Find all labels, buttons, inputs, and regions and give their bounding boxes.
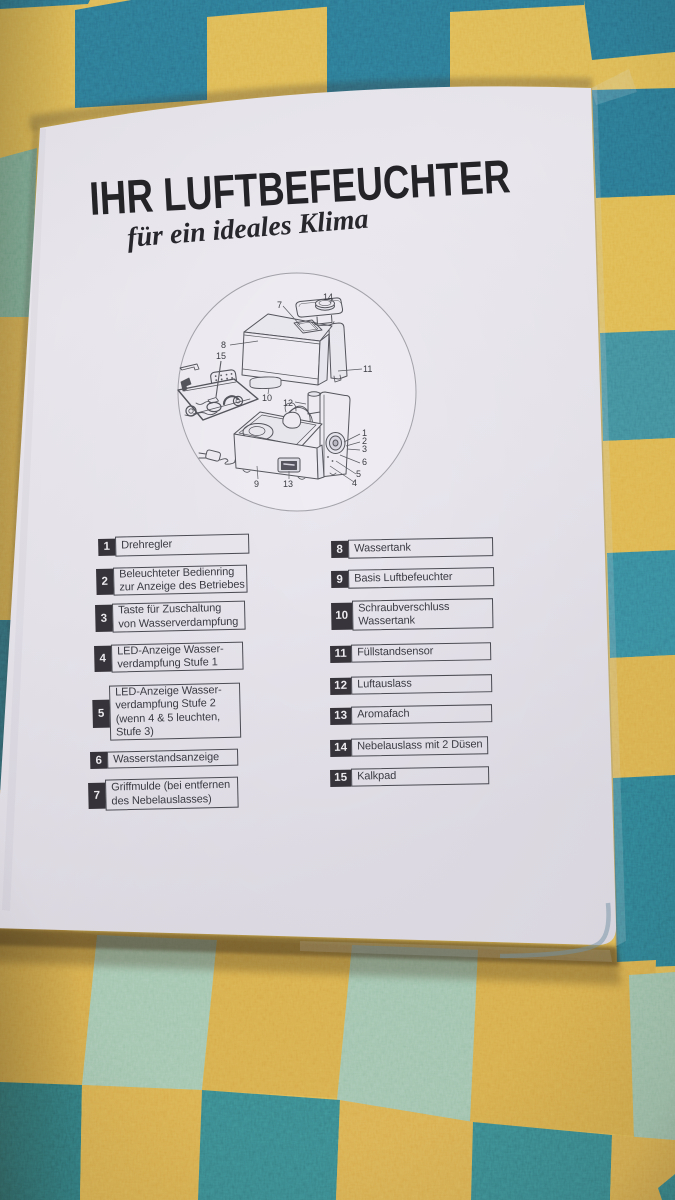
svg-text:4: 4 xyxy=(352,478,357,488)
svg-text:10: 10 xyxy=(262,393,272,403)
svg-text:12: 12 xyxy=(283,398,293,408)
svg-text:6: 6 xyxy=(362,457,367,467)
svg-text:15: 15 xyxy=(216,351,226,361)
svg-text:13: 13 xyxy=(283,479,293,489)
svg-text:3: 3 xyxy=(362,444,367,454)
svg-text:11: 11 xyxy=(363,364,372,374)
svg-text:9: 9 xyxy=(254,479,259,489)
svg-text:8: 8 xyxy=(221,340,226,350)
svg-text:14: 14 xyxy=(323,292,333,302)
svg-text:7: 7 xyxy=(277,300,282,310)
